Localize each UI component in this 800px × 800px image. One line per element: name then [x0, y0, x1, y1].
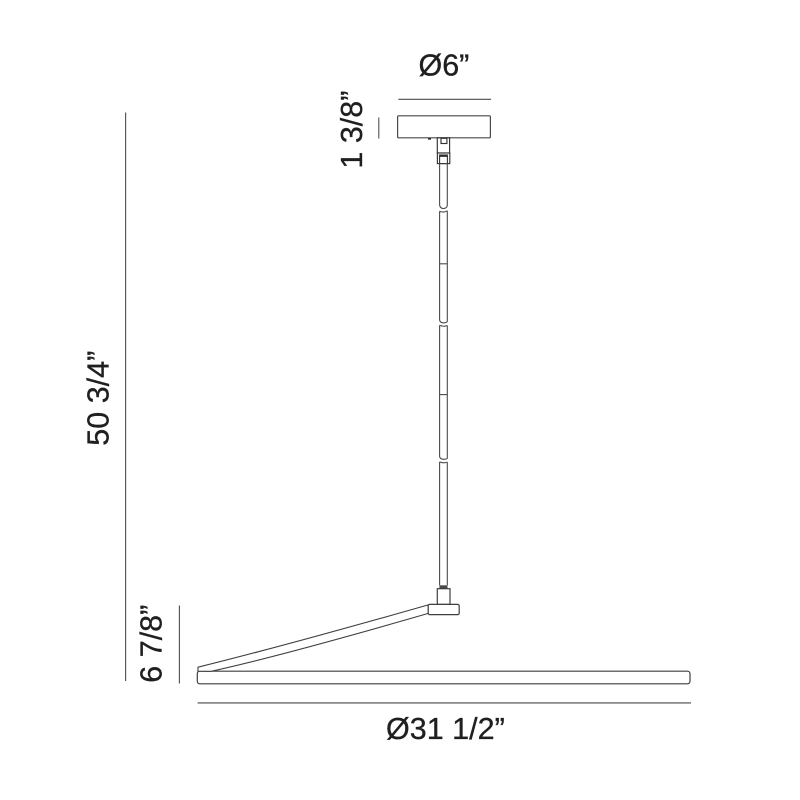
svg-text:6 7/8”: 6 7/8” — [135, 605, 169, 683]
svg-text:50 3/4”: 50 3/4” — [81, 351, 115, 446]
svg-text:Ø6”: Ø6” — [418, 49, 469, 83]
svg-text:1 3/8”: 1 3/8” — [335, 91, 369, 169]
svg-text:Ø31 1/2”: Ø31 1/2” — [386, 712, 505, 746]
